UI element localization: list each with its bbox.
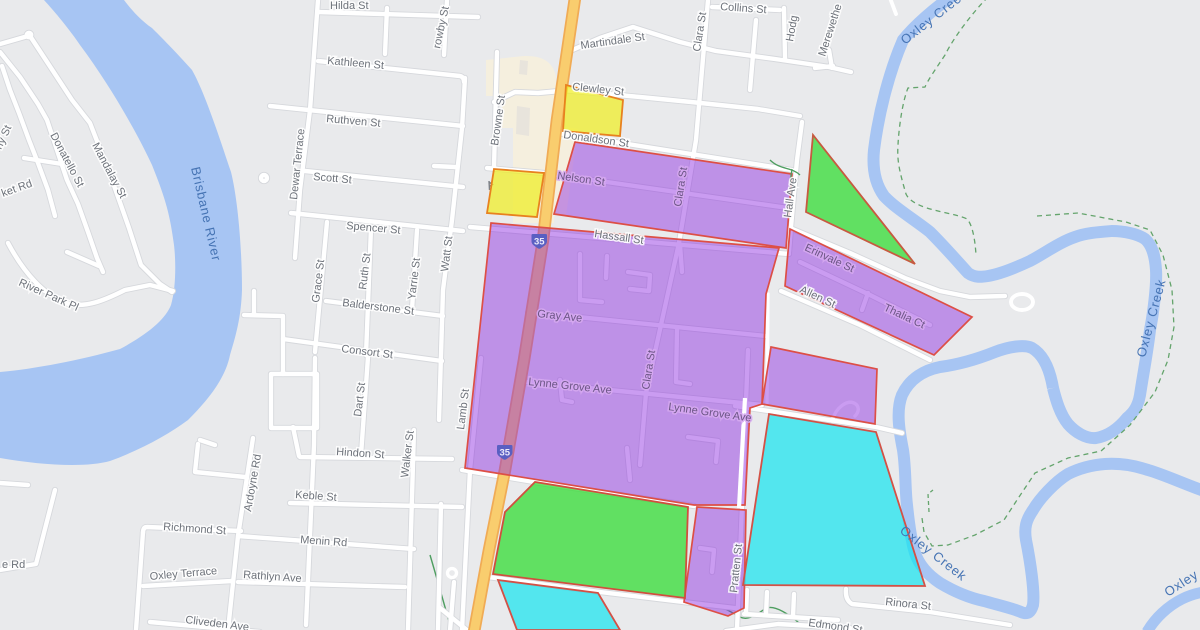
svg-text:35: 35 [499, 448, 510, 459]
svg-text:e Rd: e Rd [2, 559, 25, 571]
svg-text:35: 35 [534, 237, 545, 248]
svg-text:Hilda St: Hilda St [330, 0, 369, 12]
